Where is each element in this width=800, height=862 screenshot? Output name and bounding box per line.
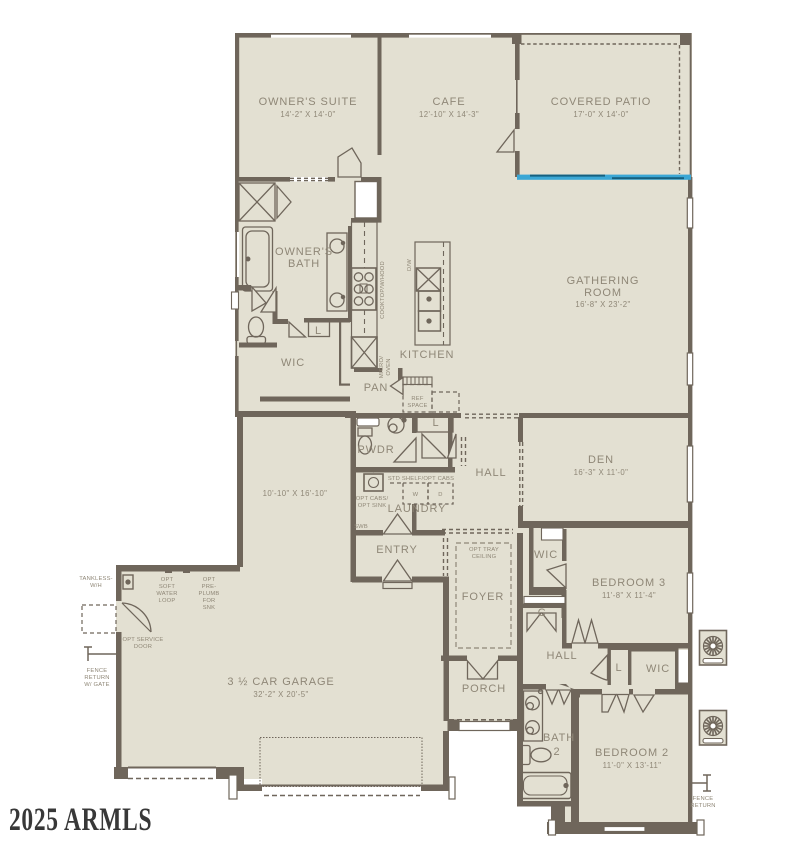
svg-text:OPT: OPT bbox=[203, 577, 216, 583]
svg-text:2: 2 bbox=[553, 746, 560, 758]
svg-text:MICRO/: MICRO/ bbox=[379, 356, 385, 378]
svg-text:D: D bbox=[438, 492, 442, 498]
svg-text:12'-10" X 14'-3": 12'-10" X 14'-3" bbox=[419, 110, 479, 119]
svg-text:HALL: HALL bbox=[546, 650, 577, 662]
svg-text:STD SHELF/OPT CABS: STD SHELF/OPT CABS bbox=[388, 476, 454, 482]
svg-text:C: C bbox=[538, 607, 547, 619]
svg-text:HALL: HALL bbox=[475, 467, 506, 479]
svg-text:REF: REF bbox=[411, 396, 423, 402]
svg-text:OWNER'S SUITE: OWNER'S SUITE bbox=[259, 96, 358, 108]
svg-text:OVEN: OVEN bbox=[386, 358, 392, 375]
svg-text:WATER: WATER bbox=[156, 591, 177, 597]
svg-text:PORCH: PORCH bbox=[462, 683, 506, 695]
svg-text:WIC: WIC bbox=[281, 357, 305, 369]
svg-text:OPT: OPT bbox=[161, 577, 174, 583]
svg-text:11'-8" X 11'-4": 11'-8" X 11'-4" bbox=[602, 591, 656, 600]
svg-text:16'-3" X 11'-0": 16'-3" X 11'-0" bbox=[574, 468, 629, 477]
svg-text:10'-10" X 16'-10": 10'-10" X 16'-10" bbox=[263, 489, 328, 498]
svg-text:W: W bbox=[413, 492, 419, 498]
svg-text:SWB: SWB bbox=[354, 524, 368, 530]
svg-text:SPACE: SPACE bbox=[407, 403, 427, 409]
svg-text:FENCE: FENCE bbox=[87, 668, 108, 674]
svg-text:11'-0" X 13'-11": 11'-0" X 13'-11" bbox=[603, 761, 662, 770]
svg-text:PAN: PAN bbox=[364, 382, 389, 394]
svg-text:FENCE: FENCE bbox=[693, 796, 714, 802]
svg-text:RETURN: RETURN bbox=[84, 675, 109, 681]
svg-text:17'-0" X 14'-0": 17'-0" X 14'-0" bbox=[573, 110, 628, 119]
svg-text:BATH: BATH bbox=[543, 732, 575, 744]
svg-text:DOOR: DOOR bbox=[134, 644, 152, 650]
svg-text:LAUNDRY: LAUNDRY bbox=[388, 503, 447, 515]
svg-text:PRE-: PRE- bbox=[202, 584, 217, 590]
svg-text:L: L bbox=[315, 325, 322, 337]
svg-text:L: L bbox=[615, 662, 622, 674]
svg-text:W/ GATE: W/ GATE bbox=[84, 682, 109, 688]
svg-text:OWNER'S: OWNER'S bbox=[275, 246, 333, 258]
svg-text:WIC: WIC bbox=[646, 663, 670, 675]
svg-text:14'-2" X 14'-0": 14'-2" X 14'-0" bbox=[280, 110, 335, 119]
svg-text:DEN: DEN bbox=[588, 454, 614, 466]
svg-text:3 ½ CAR GARAGE: 3 ½ CAR GARAGE bbox=[227, 676, 334, 688]
svg-text:SNK: SNK bbox=[203, 605, 216, 611]
svg-text:WIC: WIC bbox=[534, 549, 558, 561]
svg-text:RETURN: RETURN bbox=[690, 803, 715, 809]
svg-text:GATHERING: GATHERING bbox=[567, 275, 640, 287]
svg-text:FOYER: FOYER bbox=[462, 591, 504, 603]
svg-text:D/W: D/W bbox=[407, 259, 413, 271]
svg-text:16'-8" X 23'-2": 16'-8" X 23'-2" bbox=[575, 300, 630, 309]
svg-text:BEDROOM 2: BEDROOM 2 bbox=[595, 747, 669, 759]
svg-text:CEILING: CEILING bbox=[472, 554, 497, 560]
svg-text:CAFE: CAFE bbox=[433, 96, 466, 108]
svg-text:OPT CABS/: OPT CABS/ bbox=[356, 496, 389, 502]
svg-text:LOOP: LOOP bbox=[159, 598, 176, 604]
svg-text:COOKTOP/W/HOOD: COOKTOP/W/HOOD bbox=[380, 261, 386, 319]
svg-text:COVERED PATIO: COVERED PATIO bbox=[551, 96, 652, 108]
svg-text:SOFT: SOFT bbox=[159, 584, 176, 590]
svg-text:ENTRY: ENTRY bbox=[376, 544, 418, 556]
svg-text:BEDROOM 3: BEDROOM 3 bbox=[592, 577, 666, 589]
svg-text:OPT SINK: OPT SINK bbox=[358, 503, 387, 509]
svg-text:2025 ARMLS: 2025 ARMLS bbox=[9, 803, 152, 838]
svg-text:ROOM: ROOM bbox=[584, 287, 622, 299]
svg-text:32'-2" X 20'-5": 32'-2" X 20'-5" bbox=[253, 690, 308, 699]
svg-text:FOR: FOR bbox=[203, 598, 216, 604]
svg-text:TANKLESS-: TANKLESS- bbox=[79, 576, 113, 582]
svg-text:KITCHEN: KITCHEN bbox=[400, 349, 455, 361]
svg-text:OPT SERVICE: OPT SERVICE bbox=[123, 637, 164, 643]
svg-text:BATH: BATH bbox=[288, 258, 320, 270]
svg-text:PLUMB: PLUMB bbox=[199, 591, 220, 597]
svg-text:PWDR: PWDR bbox=[357, 444, 394, 456]
svg-text:W/H: W/H bbox=[90, 583, 102, 589]
svg-text:OPT TRAY: OPT TRAY bbox=[469, 547, 499, 553]
svg-text:L: L bbox=[432, 417, 439, 429]
